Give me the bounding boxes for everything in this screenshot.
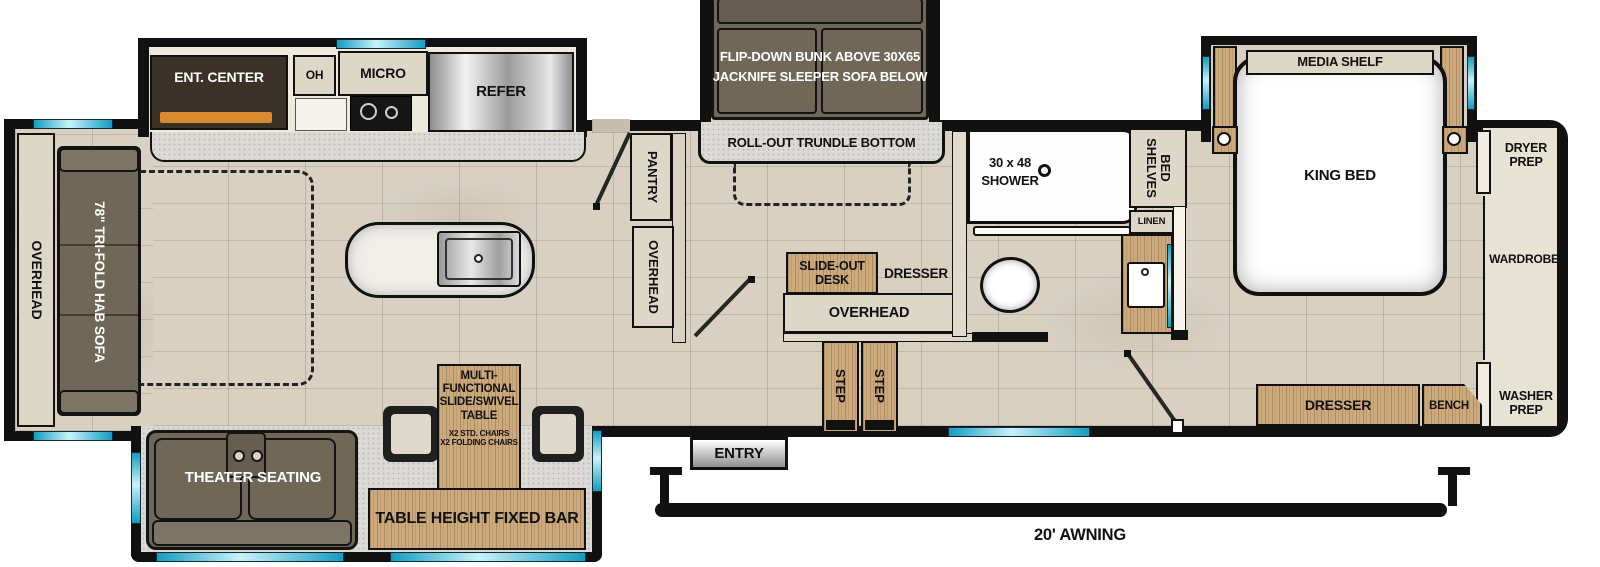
bench-label: BENCH	[1422, 392, 1476, 422]
linen-label: LINEN	[1129, 210, 1174, 234]
wall-cap	[1171, 330, 1188, 340]
desk-label-line1: SLIDE-OUT	[799, 259, 865, 273]
pantry-label: PANTRY	[643, 135, 661, 219]
door-foot	[748, 276, 755, 283]
closet-door-track	[1483, 196, 1485, 360]
table-label-line: MULTI-	[461, 370, 498, 383]
front-overhead-label: OVERHEAD	[27, 220, 45, 340]
dryer-prep-label: DRYER PREP	[1490, 138, 1562, 172]
entertainment-center-shelf	[160, 112, 272, 123]
microwave-label: MICRO	[338, 51, 428, 96]
desk-label: SLIDE-OUT DESK	[786, 254, 878, 292]
table-label-line: FUNCTIONAL	[443, 383, 516, 396]
faucet-icon	[474, 254, 483, 263]
window	[1467, 56, 1475, 110]
wardrobe-label: WARDROBE	[1486, 252, 1562, 268]
table-label-line: SLIDE/SWIVEL	[440, 396, 519, 409]
burner-icon	[360, 103, 377, 120]
door-foot	[593, 203, 600, 210]
refrigerator-label: REFER	[428, 52, 574, 132]
tri-fold-sofa-label: 78" TRI-FOLD HAB SOFA	[90, 162, 108, 402]
galley-floor	[150, 132, 586, 162]
hall-overhead-label: OVERHEAD	[783, 293, 955, 333]
bunk-label-line2: JACKNIFE SLEEPER SOFA BELOW	[705, 68, 935, 86]
closet-pillar	[1476, 130, 1491, 194]
rv-floorplan: OVERHEAD 78" TRI-FOLD HAB SOFA ENT. CENT…	[0, 0, 1600, 567]
cupholder-icon	[233, 450, 245, 462]
awning-label: 20' AWNING	[1005, 524, 1155, 546]
table-label-line: TABLE	[461, 410, 497, 423]
washer-prep-label: WASHER PREP	[1490, 386, 1562, 420]
oh-cabinet-label: OH	[293, 55, 336, 96]
entertainment-center-label: ENT. CENTER	[150, 62, 288, 92]
window	[33, 431, 113, 441]
sofa-back	[717, 0, 923, 24]
hall-dresser-label: DRESSER	[878, 262, 954, 286]
fixed-bar-label: TABLE HEIGHT FIXED BAR	[368, 488, 586, 550]
step-tread	[826, 420, 855, 430]
closet-area	[1483, 128, 1557, 426]
table-sub-line: X2 STD. CHAIRS	[449, 429, 509, 438]
bunk-label-line1: FLIP-DOWN BUNK ABOVE 30X65	[705, 48, 935, 66]
slideout-travel-dashes	[140, 170, 314, 386]
step-label: STEP	[832, 356, 848, 416]
shower-threshold	[973, 226, 1131, 236]
bath-threshold	[972, 332, 1048, 341]
table-sub-line: X2 FOLDING CHAIRS	[440, 438, 518, 447]
awning-bracket	[660, 474, 669, 506]
trundle-travel-dashes	[733, 164, 911, 206]
window	[131, 452, 141, 524]
pantry-overhead-label: OVERHEAD	[644, 228, 662, 326]
door-opening-patch	[592, 119, 630, 133]
counter	[295, 98, 347, 131]
window	[390, 552, 586, 562]
faucet-icon	[1141, 268, 1149, 276]
bath-wall-right	[1173, 206, 1186, 334]
hall-wall	[672, 133, 686, 343]
window	[1202, 56, 1210, 110]
bedroom-dresser-label: DRESSER	[1256, 384, 1420, 426]
cupholder-icon	[251, 450, 263, 462]
entry-label: ENTRY	[690, 437, 788, 470]
door-foot	[1124, 350, 1131, 357]
theater-backrest	[152, 520, 352, 546]
burner-icon	[385, 106, 398, 119]
theater-seating-label: THEATER SEATING	[158, 468, 348, 488]
dinette-bench-cushion	[391, 414, 431, 454]
vanity-light-strip	[1167, 244, 1172, 328]
awning-line	[655, 503, 1447, 517]
desk-label-line2: DESK	[815, 273, 849, 287]
bed-shelves-label: BED SHELVES	[1137, 129, 1179, 207]
lamp-icon	[1217, 132, 1231, 146]
step-tread	[865, 420, 894, 430]
media-shelf-label: MEDIA SHELF	[1246, 50, 1434, 75]
step-label: STEP	[871, 356, 887, 416]
door-stub	[1171, 419, 1184, 434]
window	[592, 430, 602, 492]
window	[336, 39, 426, 49]
shower-drain-icon	[1038, 164, 1051, 177]
trundle-label: ROLL-OUT TRUNDLE BOTTOM	[698, 126, 945, 160]
window	[948, 427, 1090, 437]
lamp-icon	[1447, 132, 1461, 146]
table-label: MULTI- FUNCTIONAL SLIDE/SWIVEL TABLE X2 …	[439, 370, 519, 484]
window	[156, 552, 344, 562]
window	[33, 119, 113, 129]
dinette-bench-cushion	[540, 414, 576, 454]
king-bed-label: KING BED	[1233, 56, 1447, 296]
awning-bracket	[1448, 474, 1457, 506]
